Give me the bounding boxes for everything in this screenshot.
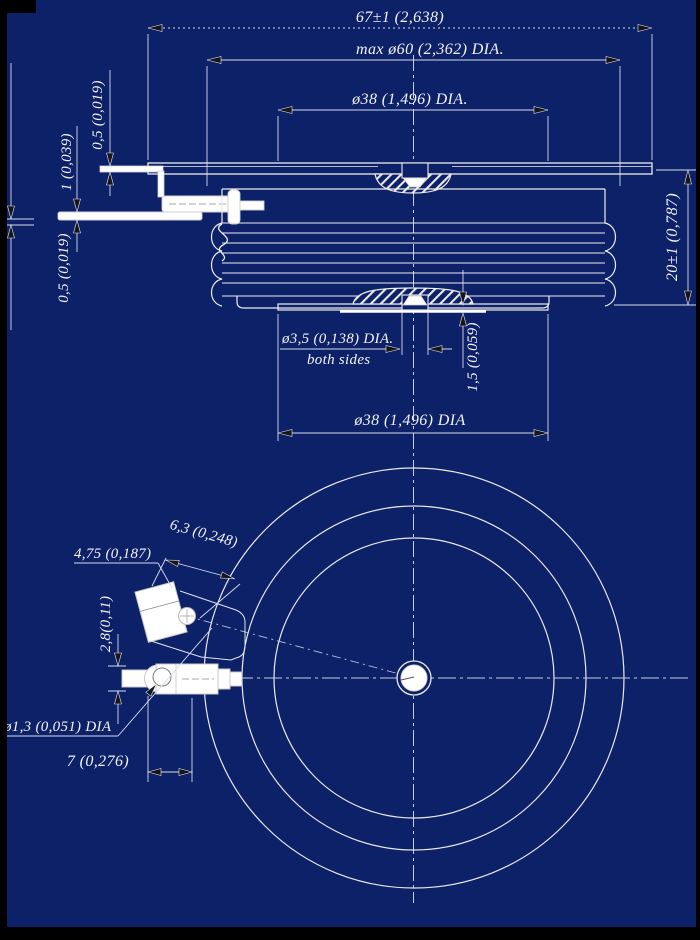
terminal-tab-contour-top xyxy=(180,591,245,660)
scan-edge-left xyxy=(0,0,7,940)
gate-connector xyxy=(240,201,264,210)
gate-rivet-pin xyxy=(228,190,240,224)
gate-lead-hook xyxy=(158,171,164,197)
dim-height-label: 20±1 (0,787) xyxy=(664,193,681,281)
center-pin-inner xyxy=(401,665,427,691)
aux-terminal-hole xyxy=(153,668,171,686)
scan-edge-right xyxy=(696,0,700,940)
dim-terminal-hole-label: ø1,3 (0,051) DIA xyxy=(3,719,112,735)
dimension-lines xyxy=(7,28,697,441)
gate-spring-wire xyxy=(219,224,228,261)
dim-ceramic-max-label: max ø60 (2,362) DIA. xyxy=(356,41,504,58)
dim-pole-bottom-label: ø38 (1,496) DIA xyxy=(353,412,465,429)
dim-lead-thickness-bottom-label: 0,5 (0,019) xyxy=(56,233,72,303)
scan-edge-bottom xyxy=(0,927,700,940)
dim-lead-thickness-top-label: 0,5 (0,019) xyxy=(90,80,106,150)
dim-terminal-width-label: 4,75 (0,187) xyxy=(74,546,151,562)
dim-center-hole-note: both sides xyxy=(307,352,370,368)
dim-terminal-length-label: 6,3 (0,248) xyxy=(168,517,239,551)
blueprint-page: 67±1 (2,638) max ø60 (2,362) DIA. ø38 (1… xyxy=(0,0,700,940)
dim-center-hole-label: ø3,5 (0,138) DIA. xyxy=(281,331,393,347)
aux-terminal-bottom-view xyxy=(122,664,242,694)
dim-terminal-offset-label: 7 (0,276) xyxy=(67,753,129,770)
gate-lead-assembly xyxy=(58,166,264,261)
top-socket-recess xyxy=(402,163,428,178)
dim-terminal-thickness-label: 2,8(0,11) xyxy=(98,596,114,653)
dim-face-step-label: 1,5 (0,059) xyxy=(465,322,481,392)
technical-drawing: 67±1 (2,638) max ø60 (2,362) DIA. ø38 (1… xyxy=(0,0,700,940)
dim-flange-width-label: 67±1 (2,638) xyxy=(356,9,444,26)
ceramic-right-fins xyxy=(605,189,616,306)
gate-lead-wire xyxy=(100,166,163,172)
dim-pole-top-label: ø38 (1,496) DIA. xyxy=(351,91,468,108)
terminal-tab-contour-bottom xyxy=(151,641,231,660)
dim-gate-terminal-thickness-label: 1 (0,039) xyxy=(59,133,75,191)
scan-edge-top-left xyxy=(0,0,36,13)
top-flange xyxy=(148,163,652,174)
gate-lead-strip xyxy=(58,212,202,220)
